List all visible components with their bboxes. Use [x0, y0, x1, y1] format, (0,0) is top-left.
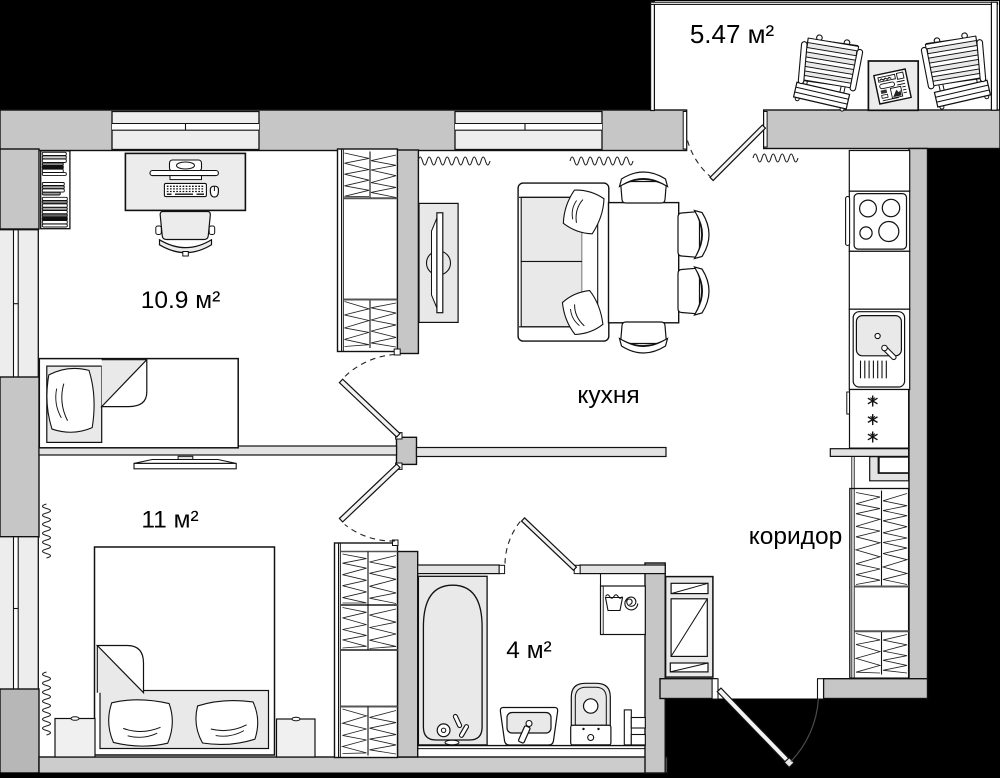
svg-text:11 м²: 11 м² — [141, 507, 198, 534]
svg-text:10.9 м²: 10.9 м² — [141, 287, 221, 314]
svg-text:коридор: коридор — [749, 523, 842, 550]
svg-text:кухня: кухня — [577, 382, 639, 409]
svg-text:4 м²: 4 м² — [506, 637, 551, 664]
svg-text:5.47 м²: 5.47 м² — [690, 19, 775, 49]
